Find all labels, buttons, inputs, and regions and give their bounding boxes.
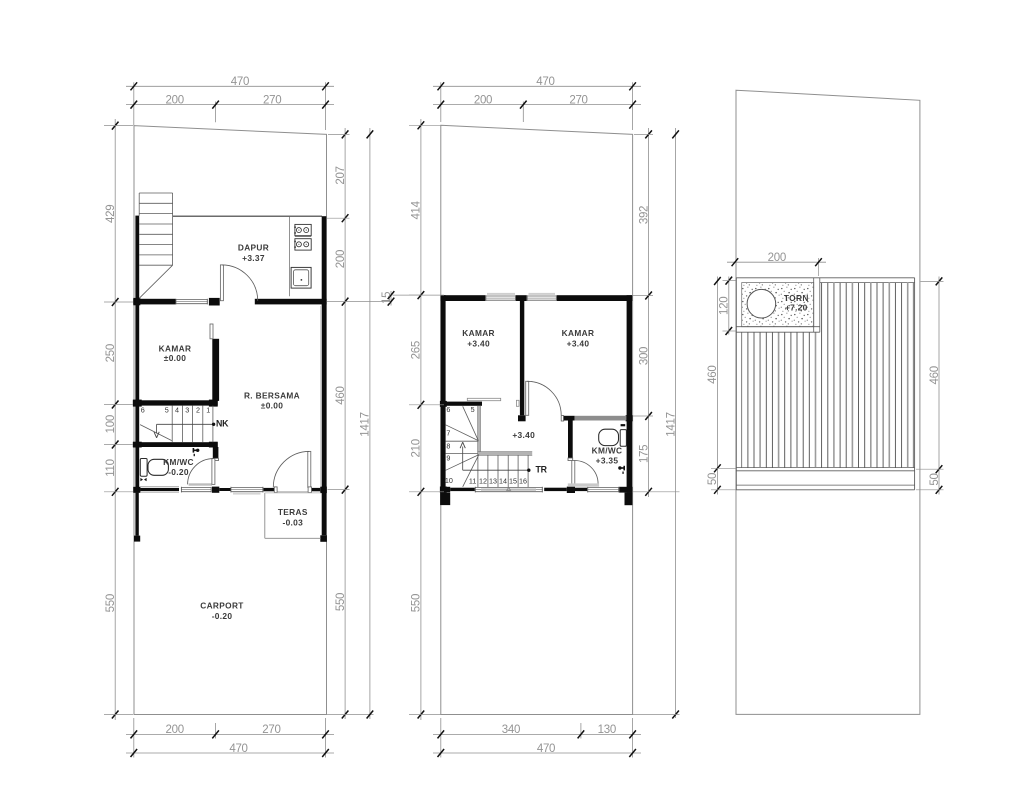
svg-text:-0.20: -0.20 xyxy=(212,611,233,621)
svg-text:470: 470 xyxy=(537,743,555,755)
svg-text:265: 265 xyxy=(411,341,423,359)
svg-text:NK: NK xyxy=(216,419,229,429)
svg-text:8: 8 xyxy=(446,442,450,451)
svg-text:392: 392 xyxy=(638,206,650,224)
svg-text:-0.03: -0.03 xyxy=(283,517,304,527)
svg-text:130: 130 xyxy=(598,724,616,736)
svg-text:15: 15 xyxy=(509,476,517,485)
svg-text:5: 5 xyxy=(165,406,169,415)
svg-text:470: 470 xyxy=(231,76,249,88)
svg-text:550: 550 xyxy=(411,594,423,612)
svg-text:KM/WC: KM/WC xyxy=(592,446,623,456)
svg-text:550: 550 xyxy=(335,593,347,611)
svg-text:1417: 1417 xyxy=(665,412,677,436)
svg-text:110: 110 xyxy=(105,459,117,476)
svg-text:4: 4 xyxy=(175,406,179,415)
svg-text:+3.40: +3.40 xyxy=(467,338,490,348)
svg-text:KAMAR: KAMAR xyxy=(462,328,495,338)
svg-text:14: 14 xyxy=(499,476,507,485)
svg-text:207: 207 xyxy=(335,166,347,184)
svg-text:200: 200 xyxy=(474,94,492,106)
svg-text:50: 50 xyxy=(929,473,941,485)
svg-text:1: 1 xyxy=(206,406,210,415)
svg-text:270: 270 xyxy=(262,724,280,736)
svg-text:TR: TR xyxy=(536,465,548,475)
svg-text:9: 9 xyxy=(446,453,450,462)
svg-text:470: 470 xyxy=(229,743,247,755)
svg-text:120: 120 xyxy=(719,297,731,315)
svg-text:±0.00: ±0.00 xyxy=(164,353,186,363)
svg-text:KM/WC: KM/WC xyxy=(163,457,194,467)
svg-text:200: 200 xyxy=(768,252,786,264)
svg-text:270: 270 xyxy=(569,94,587,106)
svg-text:+3.35: +3.35 xyxy=(596,456,619,466)
svg-text:TORN: TORN xyxy=(784,293,809,303)
svg-text:KAMAR: KAMAR xyxy=(562,328,595,338)
svg-text:15: 15 xyxy=(381,292,393,304)
svg-text:460: 460 xyxy=(335,386,347,404)
svg-text:210: 210 xyxy=(411,439,423,457)
svg-text:5: 5 xyxy=(471,405,475,414)
svg-text:DAPUR: DAPUR xyxy=(238,242,269,252)
svg-text:270: 270 xyxy=(263,94,281,106)
svg-text:414: 414 xyxy=(411,200,423,219)
svg-text:+3.40: +3.40 xyxy=(567,338,590,348)
svg-text:429: 429 xyxy=(105,205,117,223)
svg-text:6: 6 xyxy=(446,405,450,414)
svg-text:550: 550 xyxy=(105,594,117,612)
svg-text:250: 250 xyxy=(105,344,117,362)
svg-text:100: 100 xyxy=(105,415,117,433)
svg-text:16: 16 xyxy=(519,476,527,485)
svg-text:12: 12 xyxy=(479,476,487,485)
svg-text:3: 3 xyxy=(185,406,189,415)
svg-text:+3.40: +3.40 xyxy=(512,430,535,440)
svg-text:200: 200 xyxy=(166,724,184,736)
svg-text:+3.37: +3.37 xyxy=(242,253,265,263)
svg-text:KAMAR: KAMAR xyxy=(159,343,192,353)
svg-text:6: 6 xyxy=(141,406,145,415)
svg-text:2: 2 xyxy=(196,406,200,415)
svg-text:+7.20: +7.20 xyxy=(785,302,808,312)
svg-text:±0.00: ±0.00 xyxy=(261,401,283,411)
svg-text:175: 175 xyxy=(638,445,650,463)
svg-text:200: 200 xyxy=(166,94,184,106)
svg-text:-0.20: -0.20 xyxy=(168,467,189,477)
svg-text:340: 340 xyxy=(502,724,520,736)
svg-text:470: 470 xyxy=(536,76,554,88)
svg-text:7: 7 xyxy=(446,428,450,437)
svg-text:R. BERSAMA: R. BERSAMA xyxy=(244,390,300,400)
svg-text:460: 460 xyxy=(929,366,941,384)
svg-text:460: 460 xyxy=(707,366,719,384)
svg-text:CARPORT: CARPORT xyxy=(200,601,243,611)
svg-text:13: 13 xyxy=(489,476,497,485)
svg-text:1417: 1417 xyxy=(360,412,372,436)
svg-text:200: 200 xyxy=(335,250,347,268)
svg-text:11: 11 xyxy=(469,476,476,485)
svg-text:300: 300 xyxy=(638,347,650,365)
svg-text:TERAS: TERAS xyxy=(278,507,308,517)
svg-text:10: 10 xyxy=(445,476,453,485)
svg-text:50: 50 xyxy=(707,473,719,485)
